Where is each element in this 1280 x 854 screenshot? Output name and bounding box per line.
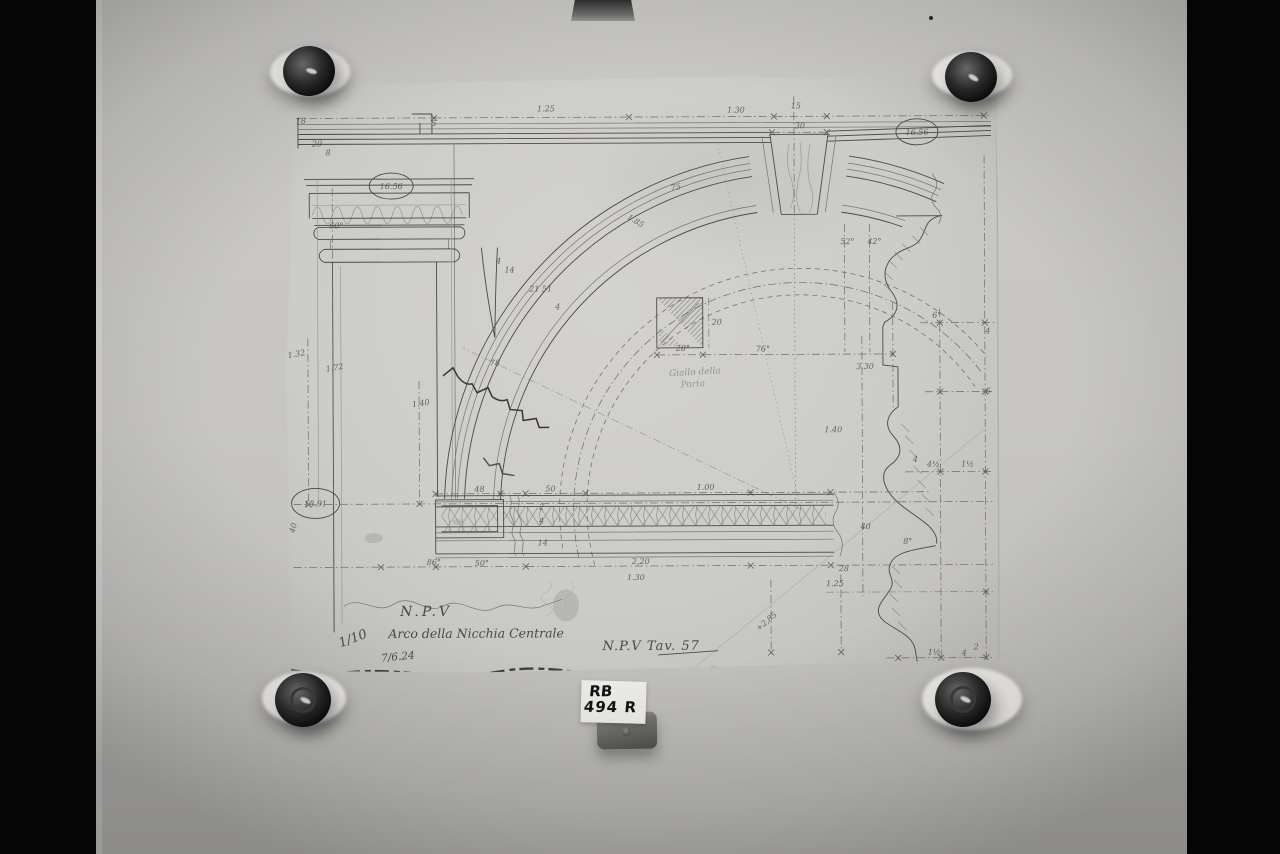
dimension-label: 6°	[932, 311, 941, 320]
dimension-label: 14	[504, 266, 514, 275]
dimension-label: 20	[311, 139, 322, 148]
photo-frame: 16.56 16.56 13.91 1.251.30153060°5182085…	[0, 0, 1280, 854]
dimension-label: +2,85	[754, 610, 779, 633]
magnet-bottom-left	[275, 673, 331, 727]
title-block: N.P.V Arco della Nicchia Centrale 1/10 7…	[337, 603, 719, 665]
dimension-label: 4	[538, 516, 544, 525]
dimension-label: 21 51	[528, 284, 552, 293]
dimension-label: 4	[912, 455, 918, 464]
dimension-label: 5	[431, 119, 436, 128]
dimension-label: 14	[538, 538, 548, 547]
title-date: 7/6.24	[381, 650, 416, 665]
right-moulding-profiles	[877, 216, 945, 662]
drawing-sheet: 16.56 16.56 13.91 1.251.30153060°5182085…	[284, 73, 1002, 676]
dimension-label: 1.00	[697, 483, 715, 492]
dimension-label: 1.85	[626, 212, 646, 229]
title-plate: N.P.V Tav. 57	[601, 639, 700, 654]
dimension-label: 40	[860, 522, 871, 531]
dimension-label: 18	[296, 116, 306, 125]
dimension-label: 30	[795, 121, 805, 130]
dimension-label: 15	[791, 101, 801, 110]
sketch-marks	[364, 367, 579, 622]
dimension-label: 1.30	[727, 106, 745, 115]
sticker-line-2: 494 R	[583, 699, 647, 715]
dimension-label: 78	[490, 359, 500, 368]
dimension-label: 50°	[475, 559, 489, 568]
elevation-value: 13.91	[304, 499, 327, 508]
dimension-label: 2	[973, 643, 979, 652]
dimension-label: 1.32	[287, 348, 306, 360]
dimension-label: 48	[473, 485, 484, 494]
dimension-label: 76°	[756, 344, 770, 353]
elevation-value: 16.56	[380, 182, 403, 191]
archive-sticker: RB 494 R	[580, 680, 646, 724]
dimension-label: 1.40	[824, 425, 842, 434]
wall-backdrop: 16.56 16.56 13.91 1.251.30153060°5182085…	[96, 0, 1187, 854]
dimension-label: 4	[984, 326, 990, 335]
dimension-label: 86°	[427, 558, 441, 567]
title-subject: Arco della Nicchia Centrale	[387, 625, 564, 641]
dimension-label: 3.30	[856, 362, 874, 371]
title-scale: 1/10	[337, 627, 370, 651]
dimension-label: 8°	[903, 537, 912, 546]
dimension-label: 4	[961, 649, 967, 658]
dimension-label: 40	[287, 522, 299, 535]
dimension-label: 52°	[840, 237, 854, 246]
bottom-architrave-band	[436, 492, 843, 558]
dimension-label: 4	[554, 302, 560, 311]
dimension-label: Porta	[679, 379, 705, 390]
dimension-label: 28	[838, 564, 849, 573]
dimension-label: 1½	[928, 648, 941, 657]
magnet-bottom-right	[935, 672, 991, 727]
title-npv: N.P.V	[399, 604, 452, 620]
dimension-label: 2	[538, 502, 544, 511]
dashed-niche-arcs	[462, 139, 988, 673]
dimension-label: 75	[670, 182, 682, 193]
entablature-lines	[298, 111, 993, 499]
dimension-label: 1.25	[537, 104, 555, 113]
dimension-label: 4	[495, 257, 501, 266]
dimension-label: 1.30	[627, 573, 645, 582]
top-edge-magnet-tab	[571, 0, 635, 21]
dimension-label: 42°	[866, 237, 881, 246]
dimension-label: 20	[711, 318, 722, 327]
dimension-label: Giallo della	[669, 366, 721, 379]
elevation-value: 16.56	[905, 128, 928, 137]
dimension-label: 2,20	[631, 557, 650, 566]
wall-speck	[929, 16, 933, 20]
technical-drawing-svg: 16.56 16.56 13.91 1.251.30153060°5182085…	[284, 73, 1002, 676]
dimension-label: 4½	[926, 460, 940, 469]
dimension-label: 1½	[961, 460, 974, 469]
dimension-label: 28°	[675, 344, 690, 353]
keystone	[762, 134, 836, 214]
dimension-label: 1.25	[826, 579, 844, 588]
dimension-label: 1.40	[411, 398, 430, 409]
dimension-label: 6	[986, 386, 991, 395]
dimension-label: 50	[545, 484, 555, 493]
dimension-label: 8	[325, 148, 330, 157]
detail-square	[657, 298, 709, 348]
dimension-label: 60°	[329, 221, 343, 230]
